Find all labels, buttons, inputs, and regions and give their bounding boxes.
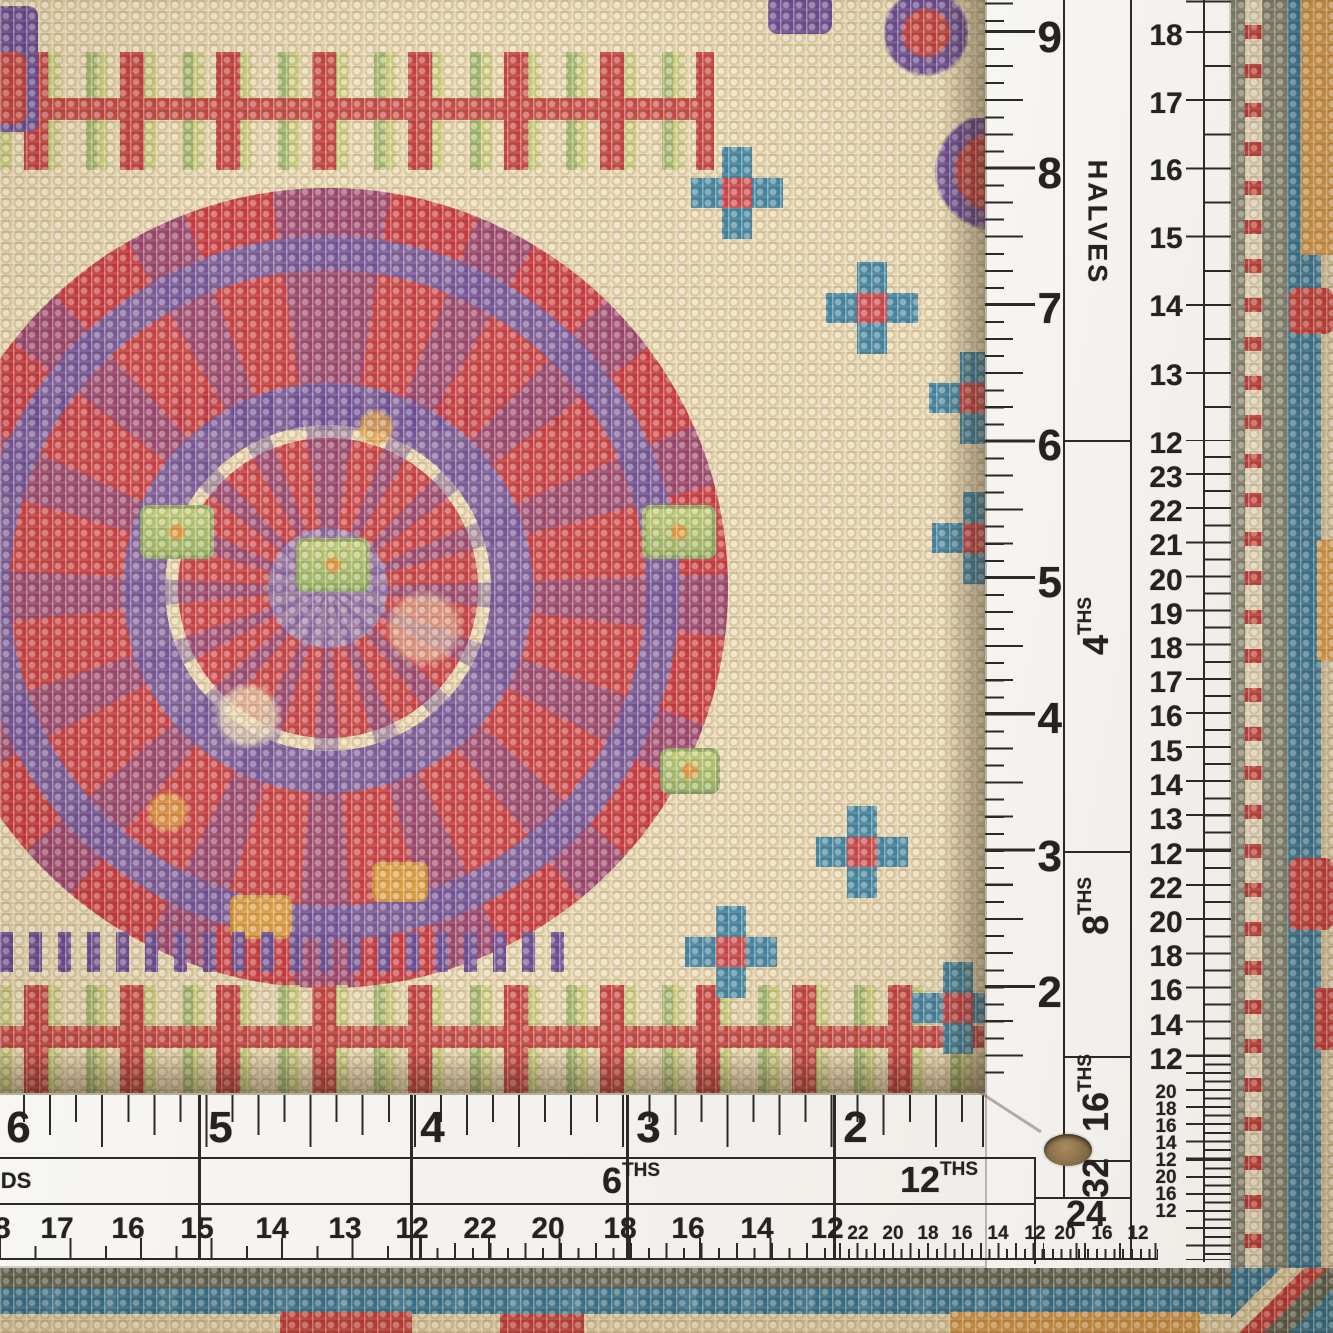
ruler-number: 6 [985, 424, 1061, 468]
ruler-number: 5 [184, 1106, 256, 1150]
ruler-number: 3 [985, 835, 1061, 879]
ruler-number: 16 [942, 1224, 982, 1243]
ruler-number: 22 [838, 1224, 878, 1243]
ruler-band-label-text: DS [1, 1168, 32, 1194]
ruler-number: 14 [725, 1214, 789, 1244]
ruler-number: 16 [1134, 702, 1198, 732]
ruler-number: 16 [1134, 156, 1198, 186]
ruler-number: 18 [1134, 942, 1198, 972]
ruler-band-label-text: 12THS [900, 1159, 940, 1201]
ruler-number: 20 [1134, 566, 1198, 596]
ruler-number: 20 [1134, 908, 1198, 938]
ruler-band-label: 6THS [532, 1157, 692, 1205]
tick-strip [1186, 1160, 1231, 1260]
ruler-number: 18 [588, 1214, 652, 1244]
ruler-number: 15 [1134, 737, 1198, 767]
ruler-number: 14 [1134, 292, 1198, 322]
tick-strip [840, 1243, 1044, 1258]
ruler-number: 3 [612, 1106, 684, 1150]
ruler-number: 6 [0, 1106, 54, 1150]
ruler-number: 22 [1134, 497, 1198, 527]
ruler-number: 22 [448, 1214, 512, 1244]
ruler-number: 15 [1134, 224, 1198, 254]
rug-measurement-photo: 9876543218171615141312232221201918171615… [0, 0, 1333, 1333]
ruler-number: 17 [25, 1214, 89, 1244]
ruler-section-label: HALVES [1063, 147, 1130, 297]
ruler-number: 4 [985, 697, 1061, 741]
ruler-section-label-text: 8THS [1076, 915, 1118, 935]
ruler-line [0, 1258, 1158, 1260]
ruler-band-label-text: 6THS [602, 1160, 622, 1202]
ruler-band-label: 12THS [840, 1156, 1000, 1204]
ruler-band-label: 24 [1006, 1190, 1166, 1238]
ruler-number: 14 [1134, 1011, 1198, 1041]
ruler-number: 20 [516, 1214, 580, 1244]
ruler-markings: 9876543218171615141312232221201918171615… [0, 0, 1333, 1333]
ruler-number: 2 [819, 1106, 891, 1150]
ruler-number: 14 [240, 1214, 304, 1244]
ruler-number: 19 [1134, 600, 1198, 630]
ruler-number: 13 [1134, 361, 1198, 391]
ruler-section-label-text: 4THS [1076, 635, 1118, 655]
ruler-number: 20 [873, 1224, 913, 1243]
ruler-number: 18 [1134, 634, 1198, 664]
ruler-line [1063, 440, 1130, 442]
ruler-number: 15 [165, 1214, 229, 1244]
ruler-number: 18 [0, 1214, 26, 1244]
ruler-number: 17 [1134, 668, 1198, 698]
ruler-band-label: DS [0, 1157, 96, 1205]
ruler-number: 7 [985, 287, 1061, 331]
ruler-number: 23 [1134, 463, 1198, 493]
ruler-number: 12 [1134, 840, 1198, 870]
ruler-number: 17 [1134, 89, 1198, 119]
ruler-number: 16 [1134, 976, 1198, 1006]
ruler-number: 14 [1134, 771, 1198, 801]
ruler-number: 12 [1134, 429, 1198, 459]
ruler-number: 22 [1134, 874, 1198, 904]
ruler-number: 8 [985, 152, 1061, 196]
ruler-section-label-text: HALVES [1081, 159, 1112, 285]
ruler-section-label: 8THS [1063, 850, 1130, 1000]
ruler-number: 9 [985, 16, 1061, 60]
ruler-number: 13 [313, 1214, 377, 1244]
ruler-number: 12 [1134, 1045, 1198, 1075]
ruler-number: 13 [1134, 805, 1198, 835]
ruler-number: 16 [656, 1214, 720, 1244]
ruler-line [1130, 0, 1132, 1258]
ruler-number: 21 [1134, 531, 1198, 561]
ruler-section-label: 4THS [1063, 570, 1130, 720]
ruler-number: 16 [96, 1214, 160, 1244]
ruler-band-label-text: 24 [1066, 1193, 1106, 1235]
ruler-number: 12 [380, 1214, 444, 1244]
ruler-number: 5 [985, 561, 1061, 605]
ruler-number: 4 [396, 1106, 468, 1150]
ruler-number: 18 [1134, 21, 1198, 51]
ruler-line [1203, 0, 1205, 1262]
ruler-number: 2 [985, 971, 1061, 1015]
